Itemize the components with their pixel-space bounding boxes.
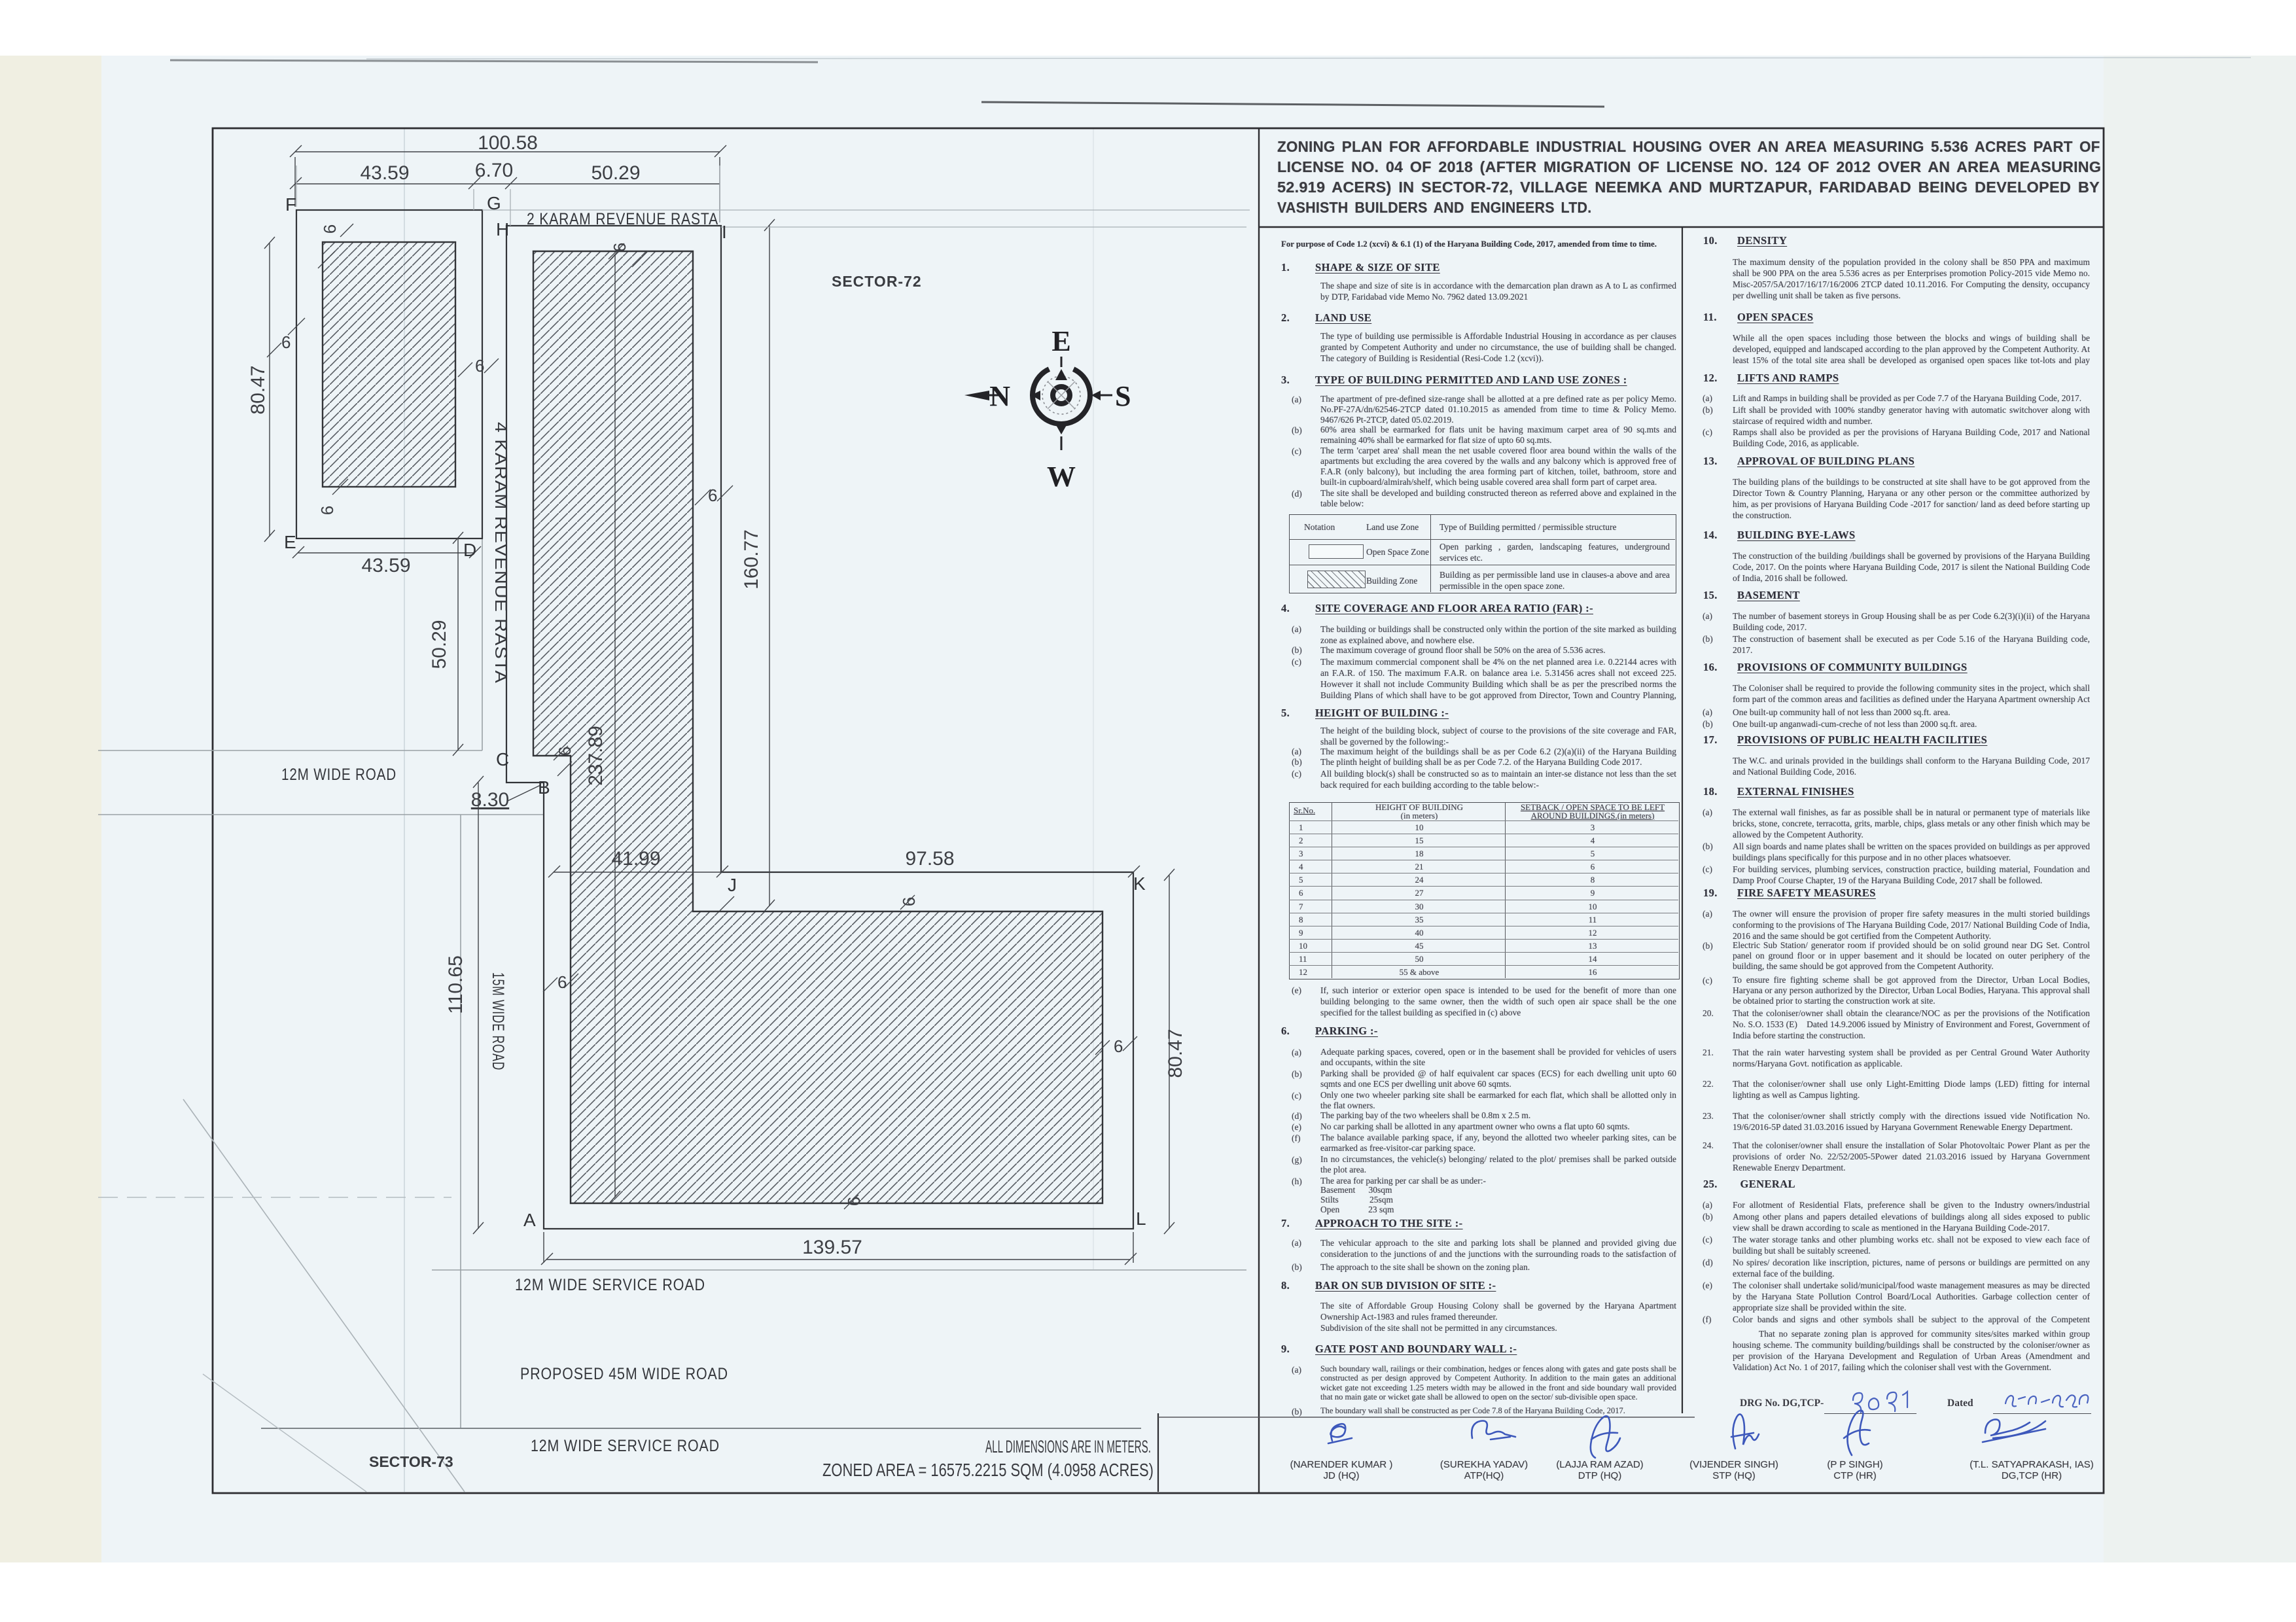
svg-text:PROPOSED 45M WIDE ROAD: PROPOSED 45M WIDE ROAD <box>520 1365 728 1383</box>
svg-text:80.47: 80.47 <box>247 365 269 414</box>
svg-text:50.29: 50.29 <box>429 620 450 669</box>
svg-text:41.99: 41.99 <box>611 848 660 870</box>
svg-text:237.89: 237.89 <box>585 726 607 786</box>
svg-text:80.47: 80.47 <box>1165 1029 1186 1078</box>
svg-text:D: D <box>463 540 476 560</box>
svg-text:2 KARAM REVENUE RASTA: 2 KARAM REVENUE RASTA <box>527 210 718 228</box>
svg-text:6: 6 <box>320 224 340 234</box>
svg-text:160.77: 160.77 <box>741 529 762 590</box>
svg-text:110.65: 110.65 <box>445 955 467 1014</box>
svg-text:139.57: 139.57 <box>802 1237 862 1258</box>
svg-text:97.58: 97.58 <box>905 848 954 870</box>
svg-text:6: 6 <box>899 897 919 906</box>
svg-text:6: 6 <box>555 747 574 756</box>
svg-text:43.59: 43.59 <box>360 162 409 184</box>
svg-text:6: 6 <box>610 243 629 252</box>
svg-text:E: E <box>1051 325 1070 357</box>
svg-text:12M WIDE ROAD: 12M WIDE ROAD <box>281 766 397 784</box>
svg-text:6: 6 <box>475 356 484 376</box>
svg-text:I: I <box>722 222 727 242</box>
svg-text:E: E <box>284 532 296 552</box>
svg-text:K: K <box>1133 873 1146 894</box>
svg-text:6: 6 <box>708 485 717 505</box>
svg-text:15M WIDE ROAD: 15M WIDE ROAD <box>489 972 507 1070</box>
svg-text:8.30: 8.30 <box>471 789 509 811</box>
svg-text:6: 6 <box>557 972 567 992</box>
svg-text:W: W <box>1047 461 1076 493</box>
svg-text:6.70: 6.70 <box>475 160 513 181</box>
svg-text:6: 6 <box>1114 1036 1123 1056</box>
svg-text:B: B <box>538 777 550 798</box>
svg-text:C: C <box>496 749 509 769</box>
svg-text:4 KARAM REVENUE RASTA: 4 KARAM REVENUE RASTA <box>491 422 510 684</box>
svg-text:ALL DIMENSIONS ARE IN METERS.: ALL DIMENSIONS ARE IN METERS. <box>985 1437 1151 1456</box>
svg-text:SECTOR-72: SECTOR-72 <box>832 273 922 290</box>
svg-text:S: S <box>1115 380 1131 412</box>
svg-text:L: L <box>1136 1208 1146 1229</box>
svg-text:6: 6 <box>317 506 337 515</box>
svg-text:12M WIDE SERVICE ROAD: 12M WIDE SERVICE ROAD <box>515 1276 705 1294</box>
svg-text:A: A <box>523 1210 536 1230</box>
svg-text:F: F <box>285 194 296 215</box>
svg-text:SECTOR-73: SECTOR-73 <box>369 1453 453 1470</box>
svg-text:6: 6 <box>844 1197 864 1206</box>
svg-text:6: 6 <box>281 332 291 352</box>
svg-text:ZONED AREA = 16575.2215 SQM (4: ZONED AREA = 16575.2215 SQM (4.0958 ACRE… <box>822 1460 1154 1480</box>
svg-text:43.59: 43.59 <box>361 555 410 576</box>
svg-text:100.58: 100.58 <box>478 132 538 154</box>
svg-text:12M WIDE SERVICE ROAD: 12M WIDE SERVICE ROAD <box>531 1437 720 1455</box>
svg-text:50.29: 50.29 <box>591 162 640 184</box>
svg-text:H: H <box>496 219 509 239</box>
svg-text:N: N <box>989 380 1010 412</box>
svg-text:J: J <box>728 875 737 895</box>
svg-text:G: G <box>487 193 501 213</box>
